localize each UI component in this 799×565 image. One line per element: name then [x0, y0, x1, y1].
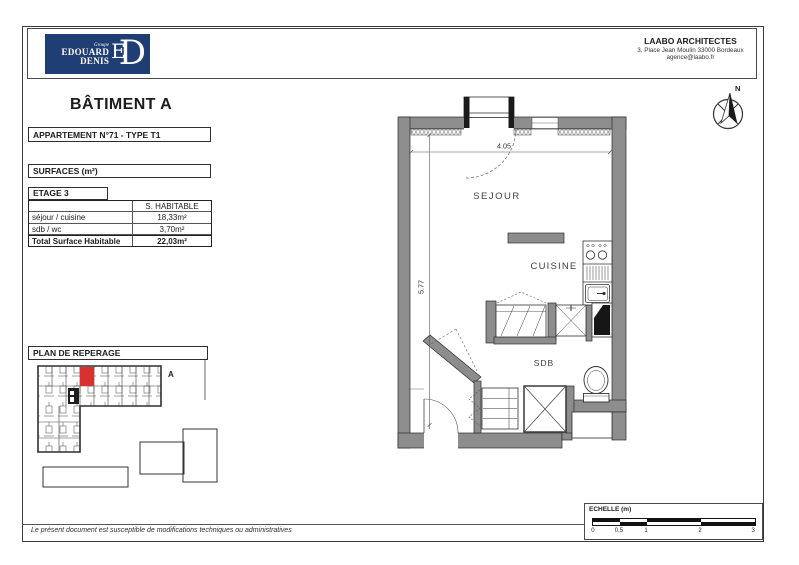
architect-block: LAABO ARCHITECTES 3, Place Jean Moulin 3… [603, 36, 778, 62]
table-total-value: 22,03m² [133, 235, 211, 246]
shower-tray-small [556, 305, 586, 336]
apartment-label-box: APPARTEMENT N°71 - TYPE T1 [28, 127, 211, 142]
table-row-value: 18,33m² [133, 212, 211, 223]
building-a-label: A [168, 370, 174, 379]
architect-email: agence@laabo.fr [603, 54, 778, 62]
entry-door-opening [424, 433, 458, 449]
dimension-width: 4.05 [497, 142, 511, 151]
surfaces-label-box: SURFACES (m²) [28, 164, 211, 178]
logo-denis: DENIS [62, 57, 110, 66]
highlighted-apartment [80, 367, 94, 386]
table-row-label: sdb / wc [29, 224, 133, 235]
table-row-value: 3,70m² [133, 224, 211, 235]
scale-segment [593, 522, 620, 525]
scale-tick: 2 [698, 528, 701, 534]
closet-door-swing [497, 292, 546, 303]
surfaces-table: S. HABITABLE séjour / cuisine 18,33m² sd… [28, 200, 212, 247]
compass-north-label: N [735, 84, 740, 93]
table-corner-cell [29, 201, 133, 212]
reperage-title-box: PLAN DE REPERAGE [28, 346, 208, 360]
table-total-label: Total Surface Habitable [29, 235, 133, 246]
scale-label: ECHELLE (m) [589, 506, 631, 513]
closet-sejour [496, 292, 546, 337]
table-row-label: séjour / cuisine [29, 212, 133, 223]
toilet-icon [584, 367, 610, 403]
footer-note: Le présent document est susceptible de m… [31, 527, 292, 534]
dimension-lines [409, 133, 612, 429]
dimension-height: 5.77 [417, 280, 426, 294]
architect-name: LAABO ARCHITECTES [603, 36, 778, 47]
floorplan-drawing: 4.05 5.77 [390, 90, 636, 455]
stair-core-detail [70, 391, 74, 395]
entry-door [408, 389, 458, 433]
compass-needle-east [729, 93, 737, 123]
logo-text: Groupe EDOUARD DENIS [62, 43, 110, 66]
scale-box: ECHELLE (m) 0 0,5 1 2 3 [584, 503, 763, 540]
monogram-d: D [119, 33, 146, 73]
stair-core-detail [70, 397, 74, 402]
scale-tick: 1 [644, 528, 647, 534]
neighbor-building [140, 442, 184, 474]
etage-label-box: ETAGE 3 [28, 187, 108, 200]
neighbor-building [43, 467, 128, 487]
compass-icon: N [702, 80, 758, 138]
logo-monogram: ED [111, 40, 146, 67]
scale-tick: 0 [591, 528, 594, 534]
neighbor-building [183, 429, 217, 482]
scale-tick: 3 [751, 528, 754, 534]
room-label-cuisine: CUISINE [531, 261, 578, 272]
table-column-header: S. HABITABLE [133, 201, 211, 212]
room-label-sejour: SEJOUR [473, 191, 521, 202]
footer-separator [22, 524, 584, 525]
scale-bar [592, 518, 756, 526]
bay-door-swing [466, 128, 516, 178]
kitchen-counter [583, 241, 612, 305]
header-band: Groupe EDOUARD DENIS ED LAABO ARCHITECTE… [27, 28, 757, 79]
scale-segment [701, 522, 755, 525]
duct-recess [572, 412, 612, 438]
edouard-denis-logo: Groupe EDOUARD DENIS ED [45, 34, 150, 74]
shower-sdb [524, 386, 566, 432]
scale-tick: 0,5 [615, 528, 623, 534]
scale-bar-row [593, 522, 755, 525]
bay-opening [464, 116, 514, 130]
site-location-plan: A [28, 360, 218, 492]
page-title: BÂTIMENT A [70, 96, 172, 114]
architect-address: 3, Place Jean Moulin 33000 Bordeaux [603, 47, 778, 55]
scale-segment [620, 522, 647, 525]
document-page: Groupe EDOUARD DENIS ED LAABO ARCHITECTE… [0, 0, 799, 565]
technical-duct [592, 303, 612, 337]
scale-segment [647, 522, 701, 525]
room-label-sdb: SDB [534, 358, 554, 368]
